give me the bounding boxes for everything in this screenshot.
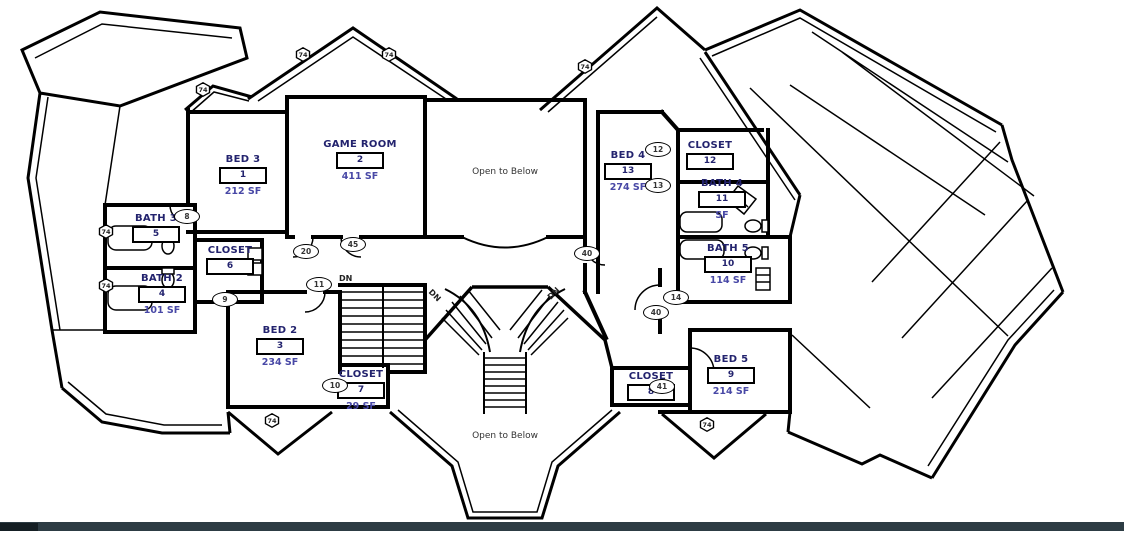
room-tag-box: 5 <box>132 226 180 243</box>
window-tag-number: 74 <box>100 226 113 238</box>
stair-bay-walls <box>425 287 612 368</box>
floorplan-drawing <box>0 0 1124 533</box>
room-label-bed-2: BED 2 3 234 SF <box>240 325 320 368</box>
room-name: CLOSET <box>196 245 264 256</box>
room-label-game-room: GAME ROOM 2 411 SF <box>320 139 400 182</box>
room-name: BATH 4 <box>688 178 756 189</box>
room-tag-box: 11 <box>698 191 746 208</box>
room-label-bath-4: BATH 4 11 SF <box>688 178 756 221</box>
room-name: BATH 2 <box>128 273 196 284</box>
window-tag-number: 74 <box>579 61 592 73</box>
room-area: SF <box>688 210 756 221</box>
door-tag-marker: 9 <box>212 292 238 307</box>
room-label-bed-3: BED 3 1 212 SF <box>204 154 282 197</box>
window-tag-number: 74 <box>197 84 210 96</box>
room-tag-box: 3 <box>256 338 304 355</box>
window-tag-number: 74 <box>297 49 310 61</box>
straight-staircase <box>342 285 423 368</box>
toilet <box>745 220 761 232</box>
room-name: BATH 5 <box>692 243 764 254</box>
room-tag-box: 4 <box>138 286 186 303</box>
room-tag-box: 9 <box>707 367 755 384</box>
door-tag-marker: 20 <box>293 244 319 259</box>
room-name: BED 3 <box>204 154 282 165</box>
room-name: GAME ROOM <box>320 139 400 150</box>
window-tag-number: 74 <box>383 49 396 61</box>
room-name: CLOSET <box>614 371 688 382</box>
toilet-tank <box>762 220 768 232</box>
room-name: CLOSET <box>676 140 744 151</box>
door-tag-marker: 40 <box>643 305 669 320</box>
curved-staircase <box>442 237 568 414</box>
room-area: 234 SF <box>240 357 320 368</box>
room-tag-box: 12 <box>686 153 734 170</box>
room-label-bath-5: BATH 5 10 114 SF <box>692 243 764 286</box>
window-tag-number: 74 <box>100 280 113 292</box>
room-label-bed-5: BED 5 9 214 SF <box>696 354 766 397</box>
room-label-bath-2: BATH 2 4 101 SF <box>128 273 196 316</box>
footer-bar <box>0 522 1124 531</box>
door-tag-marker: 11 <box>306 277 332 292</box>
room-label-closet-6: CLOSET 6 <box>196 245 264 277</box>
door-tag-marker: 8 <box>174 209 200 224</box>
room-tag-box: 13 <box>604 163 652 180</box>
door-tag-marker: 10 <box>322 378 348 393</box>
room-name: BED 5 <box>696 354 766 365</box>
door-tag-marker: 40 <box>574 246 600 261</box>
room-area: 101 SF <box>128 305 196 316</box>
door-tag-marker: 41 <box>649 379 675 394</box>
room-tag-box: 10 <box>704 256 752 273</box>
door-tag-marker: 14 <box>663 290 689 305</box>
open-to-below-label: Open to Below <box>460 431 550 441</box>
floor-plan-page: BED 3 1 212 SF GAME ROOM 2 411 SF BED 2 … <box>0 0 1124 533</box>
footer-bar-cap <box>0 523 38 531</box>
stair-down-label: DN <box>339 274 352 283</box>
room-area: 29 SF <box>332 401 390 412</box>
room-area: 114 SF <box>692 275 764 286</box>
window-tag-number: 74 <box>266 415 279 427</box>
room-tag-box: 6 <box>206 258 254 275</box>
room-area: 411 SF <box>320 171 400 182</box>
door-tag-marker: 12 <box>645 142 671 157</box>
room-area: 212 SF <box>204 186 282 197</box>
window-tag-number: 74 <box>701 419 714 431</box>
room-tag-box: 2 <box>336 152 384 169</box>
room-label-closet-12: CLOSET 12 <box>676 140 744 172</box>
door-tag-marker: 45 <box>340 237 366 252</box>
open-to-below-label: Open to Below <box>460 167 550 177</box>
room-name: BED 2 <box>240 325 320 336</box>
door-tag-marker: 13 <box>645 178 671 193</box>
roof-outlines <box>22 8 1063 518</box>
room-area: 214 SF <box>696 386 766 397</box>
room-tag-box: 1 <box>219 167 267 184</box>
